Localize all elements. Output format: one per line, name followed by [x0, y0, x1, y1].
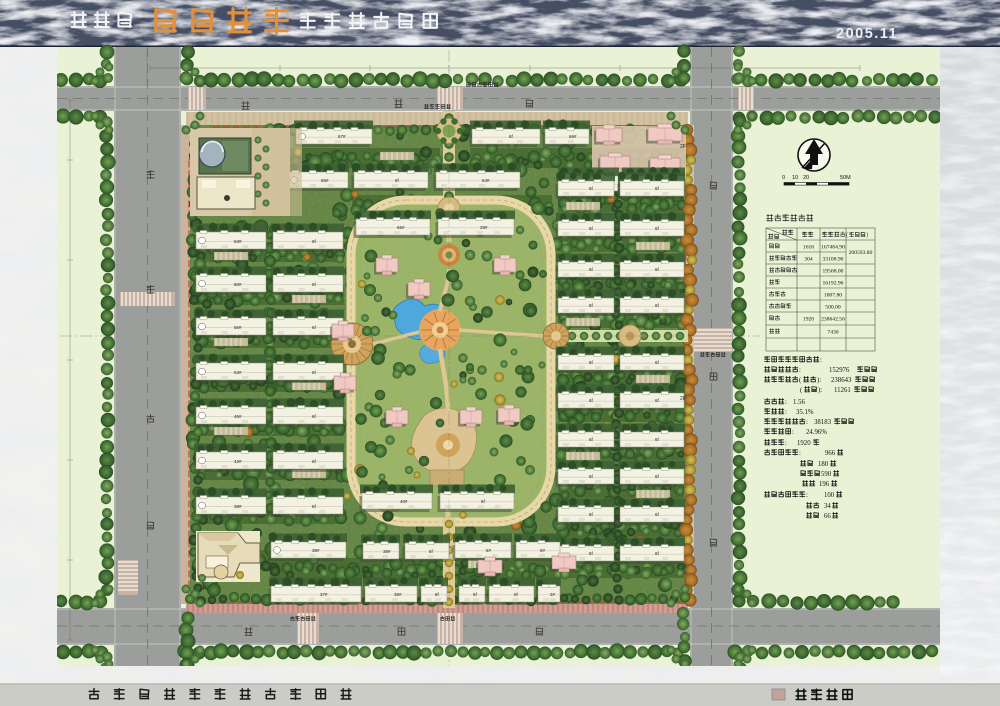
svg-text:167484.90: 167484.90	[821, 245, 845, 251]
svg-text:50#: 50#	[234, 282, 242, 287]
svg-text:180: 180	[818, 461, 829, 468]
svg-text::: :	[785, 399, 787, 406]
svg-text:34: 34	[824, 503, 831, 510]
svg-text:238643: 238643	[831, 377, 852, 384]
svg-text:1920: 1920	[797, 440, 811, 447]
svg-text:100: 100	[824, 492, 835, 499]
svg-text:65#: 65#	[397, 225, 405, 230]
svg-text::: :	[806, 419, 808, 426]
svg-text:11261: 11261	[834, 387, 851, 394]
svg-text::: :	[799, 367, 801, 374]
svg-text:24.96%: 24.96%	[806, 429, 827, 436]
svg-text:0: 0	[782, 175, 785, 181]
svg-text:2F: 2F	[680, 289, 686, 295]
svg-text::: :	[785, 440, 787, 447]
svg-text::: :	[792, 429, 794, 436]
svg-text:38183: 38183	[814, 419, 832, 426]
svg-text:46#: 46#	[234, 414, 242, 419]
svg-text:2F: 2F	[680, 396, 686, 402]
svg-text:6#: 6#	[486, 548, 492, 553]
svg-text:63#: 63#	[234, 239, 242, 244]
svg-text:53#: 53#	[234, 370, 242, 375]
svg-text:5#: 5#	[540, 548, 546, 553]
svg-text:67#: 67#	[338, 134, 346, 139]
svg-text:):: ):	[817, 377, 821, 384]
svg-text:1807.80: 1807.80	[824, 293, 842, 299]
svg-text:33108.90: 33108.90	[823, 257, 844, 263]
svg-text:304: 304	[804, 257, 813, 263]
svg-text:20: 20	[803, 175, 809, 181]
svg-text::: :	[820, 357, 822, 364]
svg-text:152976: 152976	[829, 367, 850, 374]
svg-text:1920: 1920	[803, 317, 814, 323]
svg-text:65#: 65#	[321, 178, 329, 183]
svg-text:2F: 2F	[200, 586, 206, 592]
svg-text::: :	[785, 409, 787, 416]
svg-text:50M: 50M	[840, 175, 851, 181]
svg-text:40#: 40#	[400, 499, 408, 504]
svg-text:7430: 7430	[827, 330, 838, 336]
svg-text:37#: 37#	[320, 592, 328, 597]
svg-text:16192.96: 16192.96	[823, 281, 844, 287]
svg-text:64#: 64#	[482, 178, 490, 183]
svg-text:39#: 39#	[234, 504, 242, 509]
svg-text:56#: 56#	[234, 325, 242, 330]
svg-text:1.56: 1.56	[793, 399, 805, 406]
svg-text:966: 966	[825, 450, 836, 457]
svg-text:1616: 1616	[803, 245, 814, 251]
svg-text:):: ):	[818, 387, 822, 394]
svg-text:200593.80: 200593.80	[849, 250, 873, 256]
svg-text:196: 196	[819, 481, 830, 488]
svg-text:10: 10	[792, 175, 798, 181]
svg-text:2F: 2F	[680, 144, 686, 150]
svg-text:19568.00: 19568.00	[823, 269, 844, 275]
svg-text:2005.11: 2005.11	[836, 26, 898, 42]
svg-text:42#: 42#	[234, 459, 242, 464]
svg-text:35.1%: 35.1%	[796, 409, 814, 416]
svg-text:500.00: 500.00	[825, 305, 841, 311]
svg-text:66#: 66#	[569, 134, 577, 139]
svg-text:39#: 39#	[312, 548, 320, 553]
svg-text:238642.56: 238642.56	[821, 317, 845, 323]
svg-text:3#: 3#	[550, 592, 556, 597]
svg-text:590: 590	[821, 471, 832, 478]
svg-text:29#: 29#	[480, 225, 488, 230]
svg-text::: :	[799, 450, 801, 457]
svg-text::: :	[806, 492, 808, 499]
svg-text:36#: 36#	[394, 592, 402, 597]
svg-text:66: 66	[824, 513, 831, 520]
svg-text:38#: 38#	[383, 549, 391, 554]
